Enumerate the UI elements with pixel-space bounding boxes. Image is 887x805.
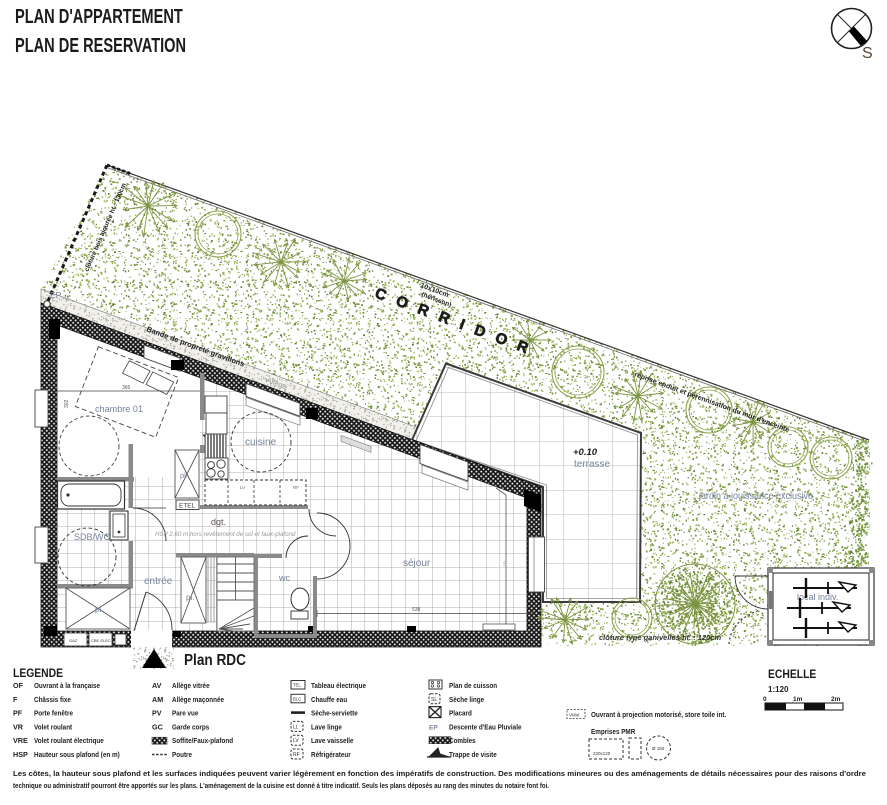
svg-text:LL: LL — [293, 724, 299, 730]
svg-text:2m: 2m — [831, 696, 841, 703]
svg-text:Allège maçonnée: Allège maçonnée — [172, 696, 224, 703]
svg-text:cuisine: cuisine — [245, 437, 277, 448]
svg-text:clôture type ganivelles ht. :: clôture type ganivelles ht. : 120cm — [599, 633, 721, 642]
svg-text:wc: wc — [278, 573, 290, 583]
svg-text:Descente d'Eau Pluviale: Descente d'Eau Pluviale — [449, 724, 522, 731]
svg-text:Ouvrant à projection motorisé,: Ouvrant à projection motorisé, store toi… — [591, 712, 726, 719]
svg-text:EP: EP — [50, 290, 62, 300]
svg-text:technique ou administratif pou: technique ou administratif pourront être… — [13, 781, 549, 790]
svg-text:chambre 01: chambre 01 — [95, 404, 143, 415]
svg-text:PV: PV — [152, 709, 162, 718]
svg-text:local indiv.: local indiv. — [797, 592, 838, 602]
svg-text:Volet roulant électrique: Volet roulant électrique — [34, 738, 104, 745]
svg-text:Poutre: Poutre — [172, 752, 192, 759]
svg-text:RF: RF — [293, 485, 299, 490]
svg-text:AM: AM — [152, 695, 163, 704]
svg-text:1:120: 1:120 — [768, 685, 789, 694]
svg-text:ECHELLE: ECHELLE — [768, 669, 816, 682]
svg-text:OF: OF — [13, 681, 24, 690]
svg-text:365: 365 — [122, 385, 131, 391]
svg-text:terrasse: terrasse — [574, 459, 611, 470]
svg-text:EP: EP — [429, 724, 438, 731]
svg-text:S: S — [503, 562, 507, 568]
svg-text:HSP 2.60 m hors revêtement de: HSP 2.60 m hors revêtement de sol et fau… — [155, 531, 296, 538]
svg-text:1m: 1m — [793, 696, 803, 703]
svg-text:HSP: HSP — [13, 750, 28, 759]
svg-text:CBE ELEC: CBE ELEC — [91, 638, 111, 643]
svg-text:dgt.: dgt. — [211, 517, 226, 527]
svg-text:Les côtes, la hauteur sous pla: Les côtes, la hauteur sous plafond et le… — [13, 769, 866, 778]
svg-text:PLAN DE RESERVATION: PLAN DE RESERVATION — [15, 34, 186, 57]
svg-text:VRE: VRE — [13, 736, 28, 745]
svg-text:Hauteur sous plafond (en m): Hauteur sous plafond (en m) — [34, 752, 120, 759]
svg-text:Placard: Placard — [449, 710, 472, 717]
svg-text:Combles: Combles — [449, 738, 476, 745]
svg-text:Plan de cuisson: Plan de cuisson — [449, 683, 497, 690]
svg-text:pl.: pl. — [186, 593, 194, 602]
svg-text:Réfrigérateur: Réfrigérateur — [311, 752, 351, 759]
svg-text:SDB/WC: SDB/WC — [74, 532, 111, 542]
svg-text:Plan RDC: Plan RDC — [184, 652, 246, 669]
svg-text:ETEL: ETEL — [179, 503, 196, 510]
svg-text:pl.: pl. — [180, 471, 188, 480]
svg-text:PF: PF — [13, 709, 23, 718]
svg-text:LV: LV — [293, 738, 299, 744]
svg-text:Emprises PMR: Emprises PMR — [591, 729, 635, 736]
svg-text:pl.: pl. — [95, 605, 103, 614]
svg-text:Porte fenêtre: Porte fenêtre — [34, 710, 73, 717]
svg-text:220x120: 220x120 — [593, 751, 611, 756]
svg-text:Lave linge: Lave linge — [311, 724, 342, 731]
svg-text:GAZ: GAZ — [69, 638, 78, 643]
svg-text:F: F — [13, 695, 18, 704]
svg-text:LEGENDE: LEGENDE — [13, 668, 63, 681]
svg-text:AV: AV — [152, 681, 162, 690]
svg-text:Volet roulant: Volet roulant — [34, 724, 73, 731]
svg-text:VR: VR — [13, 722, 24, 731]
svg-text:TEL: TEL — [293, 683, 301, 688]
svg-text:Châssis fixe: Châssis fixe — [34, 696, 71, 703]
svg-text:302: 302 — [64, 399, 70, 408]
svg-text:jardin à jouissance exclusive: jardin à jouissance exclusive — [698, 491, 813, 502]
svg-text:Sèche linge: Sèche linge — [449, 696, 484, 703]
svg-text:Lave vaisselle: Lave vaisselle — [311, 738, 354, 745]
svg-text:Allège vitrée: Allège vitrée — [172, 683, 210, 690]
svg-text:Pare vue: Pare vue — [172, 710, 199, 717]
svg-text:Garde corps: Garde corps — [172, 724, 209, 731]
svg-text:LV: LV — [240, 485, 245, 490]
svg-text:VMot: VMot — [569, 713, 580, 718]
svg-text:S: S — [862, 45, 873, 62]
svg-text:+0.10: +0.10 — [573, 447, 598, 458]
svg-text:Chauffe eau: Chauffe eau — [311, 696, 347, 703]
svg-text:PLAN D'APPARTEMENT: PLAN D'APPARTEMENT — [15, 5, 183, 28]
svg-text:séjour: séjour — [403, 558, 431, 569]
svg-text:Ouvrant à la française: Ouvrant à la française — [34, 683, 100, 690]
svg-text:RF: RF — [293, 752, 300, 758]
svg-text:Ø 150: Ø 150 — [652, 746, 665, 751]
svg-text:BLC: BLC — [293, 696, 301, 701]
svg-text:SL: SL — [431, 697, 437, 703]
svg-text:0: 0 — [763, 696, 767, 703]
svg-text:538: 538 — [412, 607, 421, 613]
svg-text:Tableau électrique: Tableau électrique — [311, 683, 366, 690]
svg-text:entrée: entrée — [144, 576, 173, 587]
svg-text:Sèche-serviette: Sèche-serviette — [311, 710, 358, 717]
svg-text:Soffite/Faux-plafond: Soffite/Faux-plafond — [172, 738, 233, 745]
svg-text:Trappe de visite: Trappe de visite — [449, 752, 497, 759]
svg-text:GC: GC — [152, 722, 163, 731]
